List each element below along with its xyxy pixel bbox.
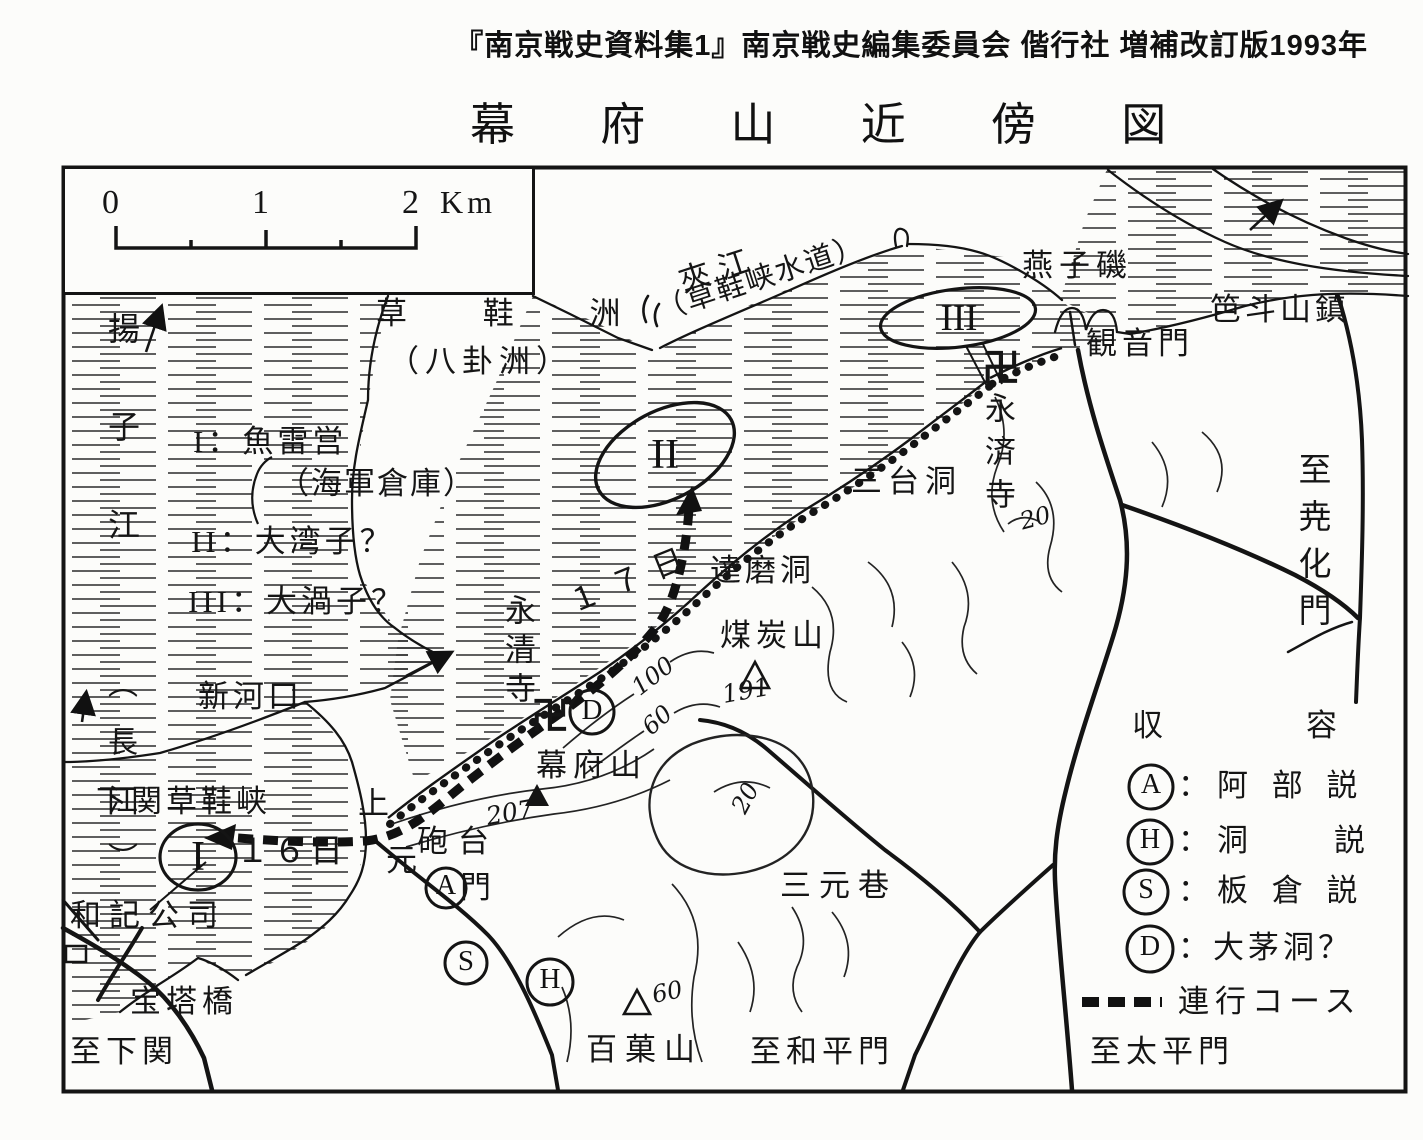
label-badoushan: 笆斗山鎮 bbox=[1210, 294, 1350, 325]
camp-letter-h: H bbox=[528, 965, 572, 994]
camp-legend-letter-s: S bbox=[1124, 876, 1168, 904]
label-santaidong: 三台洞 bbox=[851, 466, 962, 497]
label-to-xiaguan: 至下関 bbox=[70, 1036, 178, 1067]
label-to-taipingmen: 至太平門 bbox=[1090, 1036, 1234, 1067]
elevation-baiguoshan: 60 bbox=[650, 977, 685, 1007]
scale-unit: Km bbox=[440, 186, 496, 218]
camp-legend-label-a: ：阿 部 説 bbox=[1178, 770, 1366, 801]
scale-tick-0: 0 bbox=[102, 186, 119, 220]
label-yongjiji: 永済寺 bbox=[982, 392, 1013, 521]
label-meitanshan: 煤炭山 bbox=[720, 620, 828, 651]
elevation-meitanshan: 191 bbox=[720, 674, 771, 707]
map-title: 幕 府 山 近 傍 図 bbox=[470, 88, 1203, 153]
label-wajigongsi: 和記公司 bbox=[70, 900, 226, 931]
label-baotaqiao: 宝塔橋 bbox=[130, 986, 238, 1017]
label-damodong: 達磨洞 bbox=[710, 555, 815, 586]
label-baguazhou: （八卦洲） bbox=[388, 346, 573, 377]
camp-legend-label-d: ：大茅洞？ bbox=[1178, 932, 1353, 963]
site-legend-line-1: I：魚雷営 bbox=[193, 426, 347, 457]
label-yaohuamen: 至尭化門 bbox=[1294, 452, 1327, 640]
peak-baiguoshan bbox=[624, 990, 650, 1014]
temple-icon-yongjiji: 卍 bbox=[982, 350, 1020, 388]
camp-legend-letter-h: H bbox=[1128, 826, 1172, 854]
camp-letter-s: S bbox=[444, 947, 488, 976]
camp-letter-d: D bbox=[570, 696, 614, 725]
label-yanziji: 燕子磯 bbox=[1022, 250, 1133, 281]
camp-legend-label-h: ：洞 説 bbox=[1178, 825, 1373, 856]
camp-legend-letter-d: D bbox=[1128, 933, 1172, 961]
site-legend-line-4: III：大渦子？ bbox=[188, 586, 406, 617]
camp-legend-letter-a: A bbox=[1129, 771, 1173, 799]
scale-tick-1: 1 bbox=[252, 186, 269, 220]
camp-legend-route-label: 連行コース bbox=[1178, 986, 1361, 1017]
label-day16: １６日 bbox=[236, 836, 347, 869]
shore-bump bbox=[895, 229, 908, 246]
label-shangyuanmen-yuan: 元 bbox=[386, 845, 417, 876]
label-yangtze: 揚子江 bbox=[106, 312, 138, 606]
site-legend-line-3: II：大湾子？ bbox=[191, 526, 395, 557]
label-mufushan: 幕府山 bbox=[536, 750, 647, 781]
label-baiguoshan: 百菓山 bbox=[586, 1034, 703, 1065]
contour-label-20b: 20 bbox=[1017, 502, 1053, 533]
road-east-vertical bbox=[1338, 296, 1363, 702]
label-xinhekou: 新河口 bbox=[198, 681, 303, 712]
camp-legend-title: 収 容 所 bbox=[1132, 710, 1423, 741]
label-guanyinmen: 観音門 bbox=[1086, 328, 1194, 359]
site-numeral-2: II bbox=[633, 434, 697, 476]
road-taipingmen-branch bbox=[903, 865, 1053, 1090]
site-numeral-3: III bbox=[922, 300, 996, 337]
label-xiaguan-caoxiexia: 下関草鞋峡 bbox=[96, 786, 271, 817]
label-yongqingji: 永清寺 bbox=[502, 594, 533, 711]
road-guanyinmen-south bbox=[1055, 350, 1127, 1090]
label-paotai: 砲台 bbox=[417, 826, 499, 857]
site-legend-line-2: （海軍倉庫） bbox=[278, 468, 476, 499]
temple-icon-mufushan: 卍 bbox=[531, 698, 569, 736]
label-sanyuanxiang: 三元巷 bbox=[780, 870, 897, 901]
camp-letter-a: A bbox=[424, 872, 468, 900]
scanned-map-page: { "attribution": "『南京戦史資料集1』南京戦史編集委員会 偕行… bbox=[0, 0, 1423, 1140]
site-numeral-1: I bbox=[176, 836, 220, 878]
label-caoxiezhou: 草 鞋 洲 bbox=[376, 298, 655, 329]
label-to-hepingmen: 至和平門 bbox=[750, 1036, 894, 1067]
camp-legend-label-s: ：板 倉 説 bbox=[1178, 875, 1366, 906]
scale-tick-2: 2 bbox=[402, 186, 419, 220]
label-shangyuanmen-shang: 上 bbox=[358, 788, 389, 819]
source-attribution: 『南京戦史資料集1』南京戦史編集委員会 偕行社 増補改訂版1993年 bbox=[454, 22, 1368, 64]
